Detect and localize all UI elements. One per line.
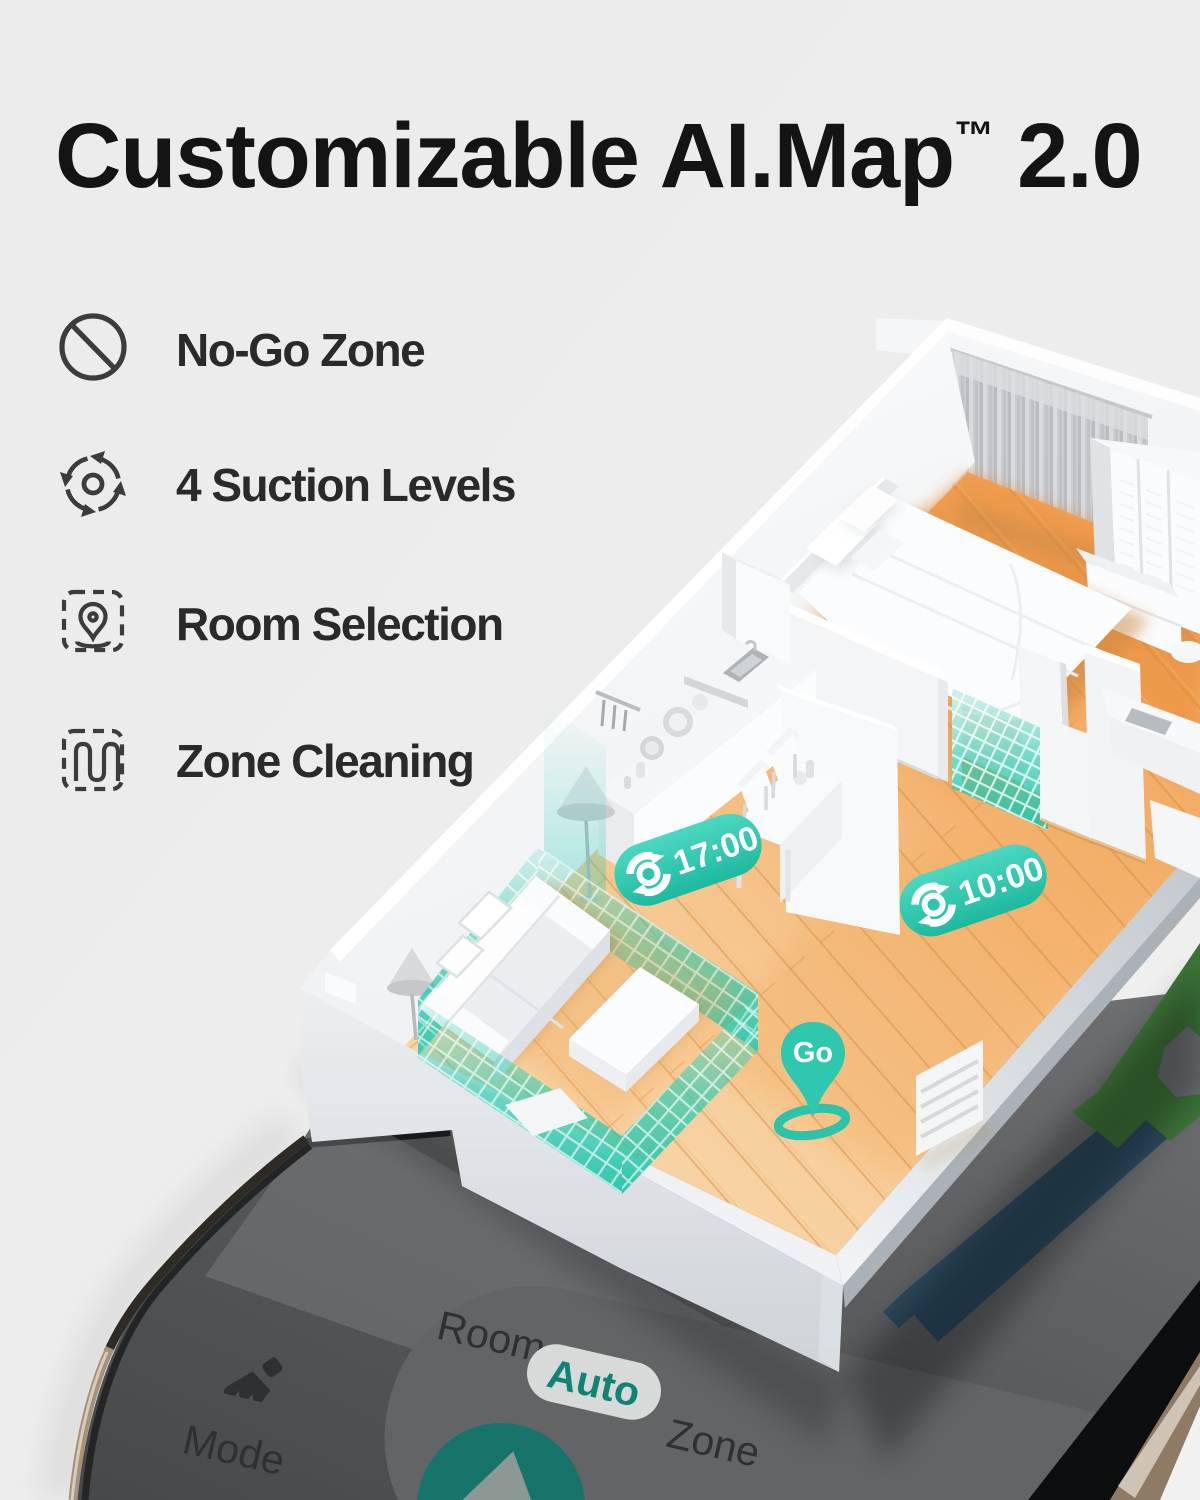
svg-text:Go: Go — [793, 1037, 833, 1069]
svg-text:Room Selection: Room Selection — [176, 598, 503, 650]
svg-text:No-Go Zone: No-Go Zone — [176, 324, 425, 376]
svg-text:Zone Cleaning: Zone Cleaning — [176, 735, 473, 787]
svg-text:4 Suction Levels: 4 Suction Levels — [176, 459, 515, 511]
